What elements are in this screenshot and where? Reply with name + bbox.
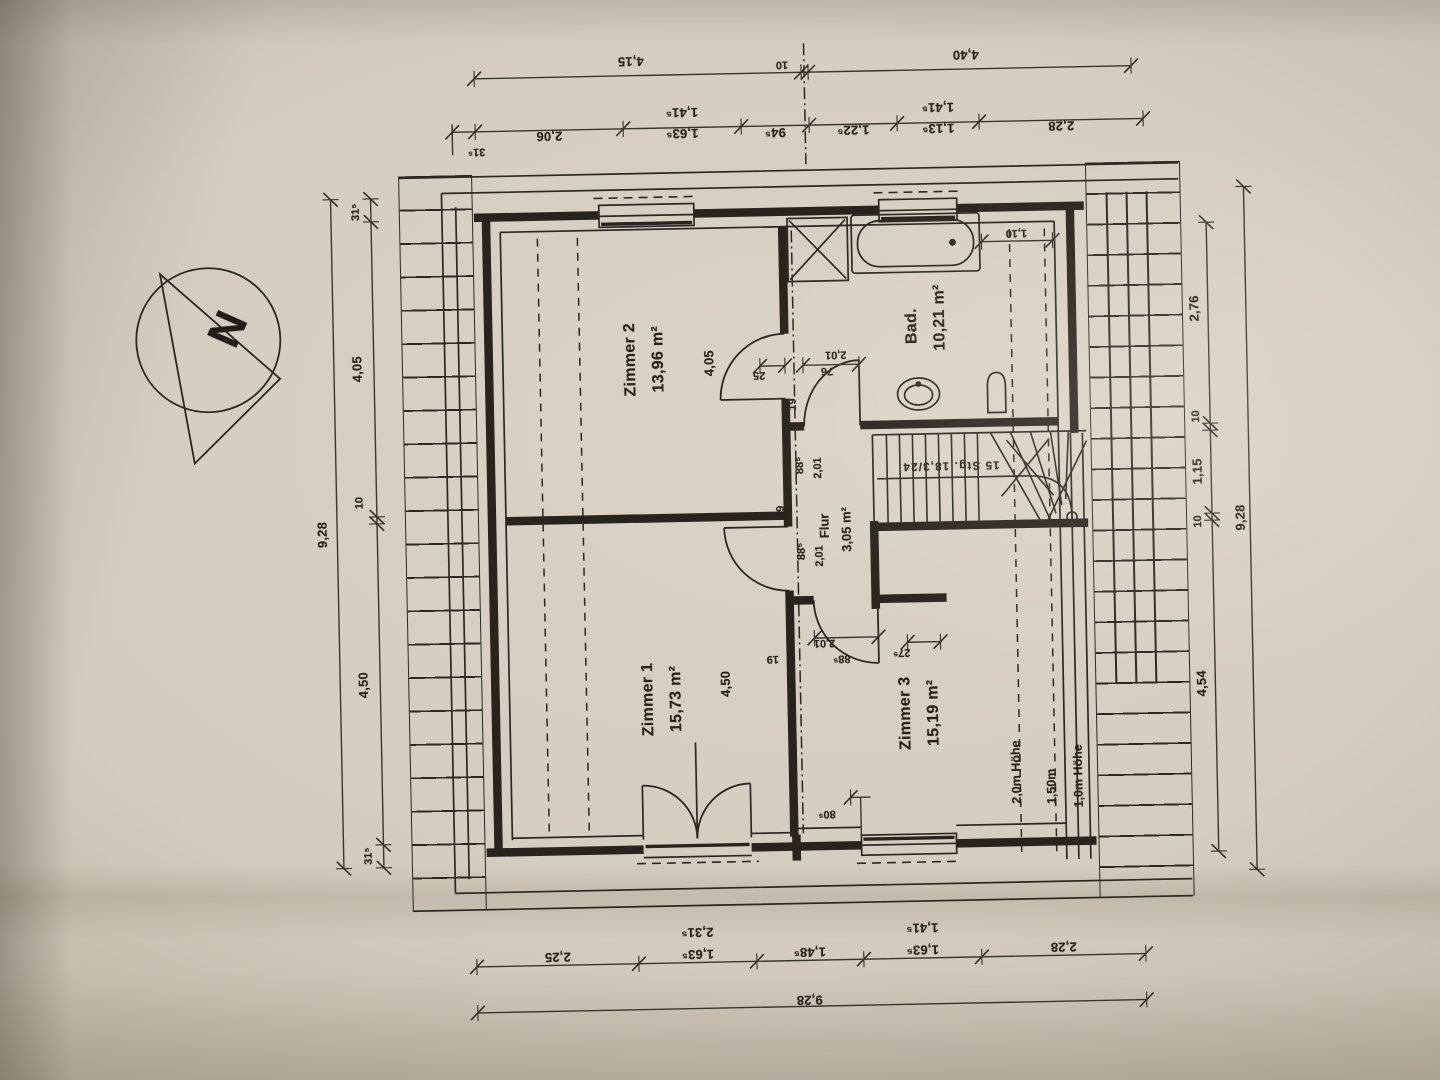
dim-right-10-b: 10: [1192, 515, 1204, 527]
dim-z3door-88-5: 88⁵: [833, 652, 851, 664]
stairs: [876, 431, 1088, 527]
dim-top-94-5: 94⁵: [765, 125, 786, 140]
room-label-flur: Flur: [816, 513, 831, 538]
area-label-bad: 10,21 m²: [930, 284, 949, 351]
dimension-chains: [328, 63, 1260, 1015]
area-label-zimmer-3: 15,19 m²: [924, 679, 943, 746]
stair-annotation: 15 Stg. 18,3/24: [902, 458, 1000, 472]
dim-top-1-13-5: 1,13⁵: [922, 121, 955, 137]
dim-left-31-5-bottom: 31⁵: [363, 847, 375, 865]
dim-z1door-88-5: 88⁵: [796, 543, 808, 561]
dim-bottom-2-31-5: 2,31⁵: [681, 925, 714, 941]
dim-bottom-2-25: 2,25: [545, 950, 571, 966]
dim-right-2-76: 2,76: [1186, 295, 1202, 321]
dim-bottom-2-28: 2,28: [1050, 939, 1076, 955]
dim-top-4-40: 4,40: [953, 47, 979, 63]
dim-left-9-28: 9,28: [314, 522, 330, 548]
dim-right-4-54: 4,54: [1194, 670, 1210, 696]
dim-left-31-5-top: 31⁵: [350, 203, 362, 221]
dim-bottom-1-63-5-b: 1,63⁵: [906, 942, 939, 958]
walls: [474, 202, 1097, 867]
dim-z2door-88-5: 88⁵: [794, 457, 806, 475]
dim-bottom-1-48-5: 1,48⁵: [793, 944, 826, 960]
north-arrow: [135, 267, 283, 465]
dim-bottom-1-41-5: 1,41⁵: [906, 920, 939, 936]
dim-bottom-9-28: 9,28: [796, 993, 822, 1009]
dim-top-1-41-5-a: 1,41⁵: [665, 105, 698, 121]
dim-top-1-63-5: 1,63⁵: [666, 126, 699, 142]
dim-tub-1-10: 1,10: [1006, 227, 1028, 239]
dim-right-9-28: 9,28: [1232, 504, 1248, 530]
area-label-zimmer-1: 15,73 m²: [667, 666, 686, 733]
dim-baddoor-76: 76: [821, 365, 833, 377]
dim-left-4-05: 4,05: [349, 356, 365, 382]
height-line-1-0m: 1,0m Höhe: [1071, 744, 1086, 807]
dim-z1door-2-01: 2,01: [814, 545, 826, 567]
dim-room-4-50: 4,50: [718, 671, 734, 697]
dim-wall-25: 25: [753, 369, 765, 381]
dim-baddoor-2-01: 2,01: [825, 348, 847, 360]
height-line-2-0m: 2,0m Höhe: [1009, 740, 1024, 803]
floor-plan-photo: 4,15104,4031⁵2,061,41⁵1,63⁵94⁵1,22⁵1,41⁵…: [0, 0, 1440, 1080]
dim-left-4-50: 4,50: [356, 672, 372, 698]
room-label-bad: Bad.: [903, 308, 922, 344]
dim-top-10: 10: [776, 59, 788, 71]
dim-z3door-2-01: 2,01: [814, 637, 836, 649]
area-label-flur: 3,05 m²: [838, 507, 854, 552]
dim-wall-27-5: 27⁵: [893, 646, 911, 658]
room-label-zimmer-2: Zimmer 2: [621, 323, 640, 397]
dim-bottom-1-63-5-a: 1,63⁵: [681, 947, 714, 963]
door-swings: [633, 332, 882, 840]
dim-wall-19-c: 19: [767, 653, 779, 665]
dim-right-1-15: 1,15: [1189, 458, 1205, 484]
dim-wall-19-a: 19: [787, 398, 799, 410]
bath-fixtures: [787, 212, 1006, 416]
plan-linework: [0, 0, 1440, 1080]
dim-top-4-15: 4,15: [618, 54, 644, 70]
area-label-zimmer-2: 13,96 m²: [649, 326, 668, 393]
room-label-zimmer-1: Zimmer 1: [639, 663, 658, 737]
dim-top-1-41-5-b: 1,41⁵: [921, 100, 954, 116]
dim-z2door-2-01: 2,01: [812, 457, 824, 479]
toilet: [987, 372, 1006, 412]
room-label-zimmer-3: Zimmer 3: [896, 676, 915, 750]
dim-top-31-5: 31⁵: [468, 146, 486, 158]
dim-top-1-22-5: 1,22⁵: [837, 122, 870, 138]
height-line-1-50m: 1,50m: [1044, 769, 1059, 805]
dim-right-10-a: 10: [1190, 410, 1202, 422]
dim-top-2-28: 2,28: [1048, 118, 1074, 134]
dim-room-4-05: 4,05: [701, 350, 717, 376]
dim-left-10: 10: [354, 497, 366, 509]
plan-sheet: 4,15104,4031⁵2,061,41⁵1,63⁵94⁵1,22⁵1,41⁵…: [0, 0, 1440, 1080]
dim-wall-19-b: 19: [775, 506, 787, 518]
dim-window-80-5: 80⁵: [818, 808, 836, 820]
dim-top-2-06: 2,06: [536, 129, 562, 145]
